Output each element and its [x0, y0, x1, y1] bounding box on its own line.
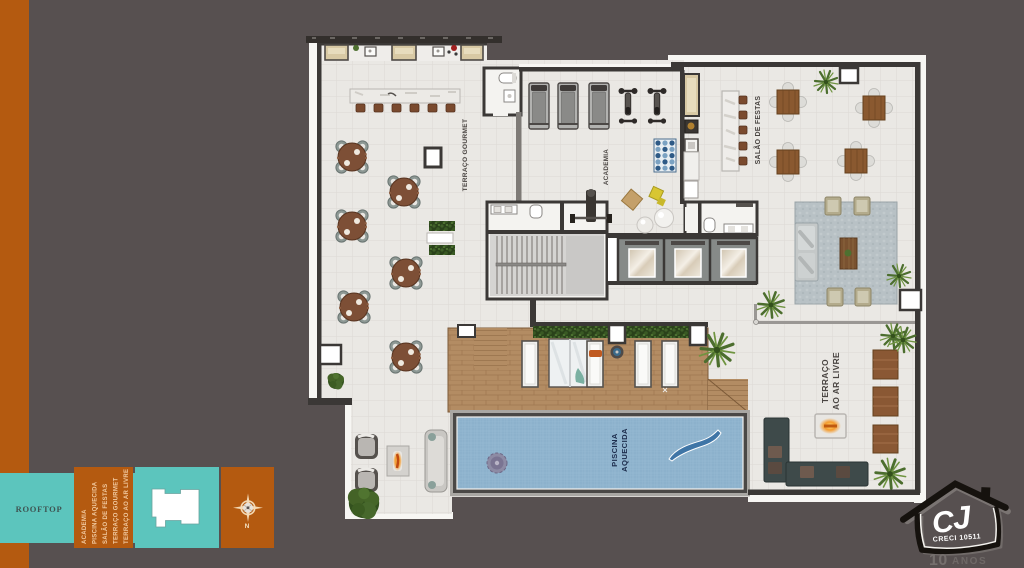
svg-text:TERRAÇO: TERRAÇO	[820, 359, 830, 403]
svg-text:N: N	[245, 523, 250, 530]
svg-text:ANOS: ANOS	[952, 556, 987, 567]
svg-text:PISCINA AQUECIDA: PISCINA AQUECIDA	[93, 481, 99, 544]
svg-text:AO AR LIVRE: AO AR LIVRE	[831, 352, 841, 410]
svg-text:ACADEMIA: ACADEMIA	[82, 509, 88, 544]
svg-text:PISCINA: PISCINA	[610, 433, 619, 467]
svg-text:ROOFTOP: ROOFTOP	[16, 504, 63, 514]
svg-text:TERRAÇO GOURMET: TERRAÇO GOURMET	[462, 119, 469, 192]
svg-text:SALÃO DE FESTAS: SALÃO DE FESTAS	[753, 96, 762, 165]
svg-text:TERRAÇO GOURMET: TERRAÇO GOURMET	[114, 477, 120, 544]
svg-text:SALÃO DE FESTAS: SALÃO DE FESTAS	[102, 484, 109, 544]
svg-text:ACADEMIA: ACADEMIA	[603, 149, 610, 185]
svg-text:TERRAÇO AO AR LIVRE: TERRAÇO AO AR LIVRE	[124, 469, 130, 544]
svg-text:AQUECIDA: AQUECIDA	[620, 428, 629, 472]
svg-text:10: 10	[929, 552, 948, 568]
